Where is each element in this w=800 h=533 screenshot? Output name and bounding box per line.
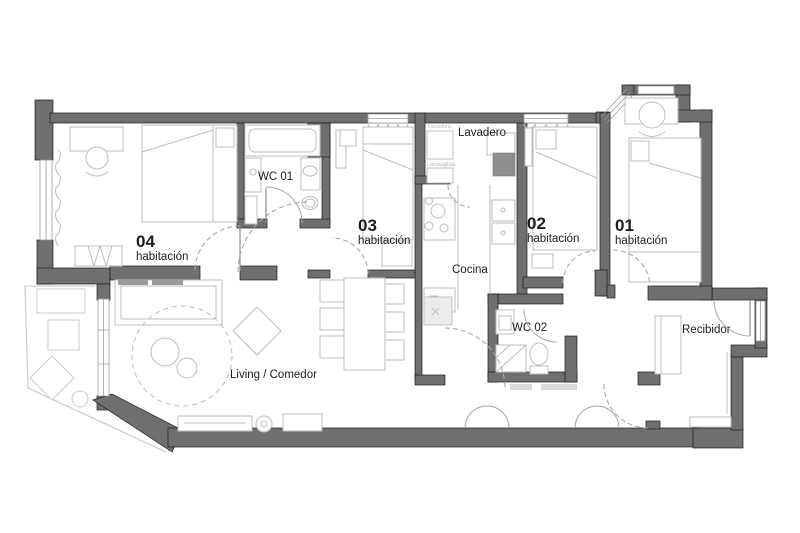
toilet-wc02 [530,343,548,365]
wall-divider-foot [595,270,607,296]
room-03-label: habitación [358,235,410,247]
dining-chair-1 [320,280,344,302]
wall-lavadero-left [415,113,425,183]
wall-pillar-top-left [35,100,53,160]
fridge [424,297,452,325]
door-arc-room02 [563,251,595,283]
living-label: Living / Comedor [230,369,317,381]
wall-wc02-right [565,336,577,382]
door-arc-room04 [195,226,240,271]
lavadero-label: Lavadero [458,127,506,139]
coffee-table-2 [177,358,197,378]
wall-room01-02-divider [600,113,610,296]
bathtub-inner [249,129,316,152]
room-01: 01 habitación [615,98,701,282]
threshold-1 [510,384,532,390]
sink-right [303,166,317,176]
wall-right-room01 [700,110,712,300]
dishwasher [427,168,453,183]
lavadero: Lavadora Lavavajillas Lavadero [427,124,515,183]
room-04: 04 habitación [56,125,238,266]
coffee-table-1 [151,338,179,366]
room-04-number: 04 [136,232,155,251]
dining-table [344,278,385,370]
room-03-number: 03 [358,216,377,235]
wall-right-recibidor-low [731,355,743,430]
dining-set [320,278,404,370]
room-02-number: 02 [527,214,546,233]
room-01-number: 01 [615,216,634,235]
washing-machine [427,131,453,159]
floor-plan-canvas: 04 habitación WC 01 03 habitación Lavado… [0,0,800,533]
cabinet-left [245,196,257,224]
bed-pillow [216,128,234,147]
sofa [115,280,222,325]
wall-balcony-door-top [97,284,110,300]
cocina: Cocina [424,185,515,312]
nightstand-03 [340,130,356,146]
recibidor: Recibidor [655,316,731,427]
wc-02: WC 02 [496,310,548,374]
wall-room04-bottom-a [110,266,200,280]
plant [256,416,272,432]
curtain-wave [56,150,61,246]
room-02: 02 habitación [524,124,597,268]
desk-chair-back [86,172,108,176]
wall-room01-corner-h [676,110,712,122]
living-comedor: Living / Comedor [115,278,404,432]
sofa-cushion-1 [118,280,148,285]
wall-diag-cap-north [622,85,634,95]
wall-recibidor-top [712,288,767,300]
wall-kitchen-left [415,183,422,378]
dining-chair-2 [320,308,344,330]
wc-01-label: WC 01 [258,171,293,183]
wall-left-jog [37,268,110,284]
room-01-label: habitación [615,235,667,247]
dishwasher-label: Lavavajillas [427,162,456,168]
desk-chair-01-back [639,132,665,137]
nightstand-02 [532,254,553,268]
wall-bottom-right-corner [693,428,743,448]
desk-chair [86,147,108,169]
wall-wc01-bottom-b [300,219,330,228]
room-03: 03 habitación [336,124,413,266]
cabinet-upper-2 [492,223,515,244]
wall-wc02-top [488,294,563,304]
washer-label: Lavadora [428,124,452,130]
wall-room01-bottom-a [607,285,615,298]
wall-room03-bottom-b [368,270,420,278]
dining-chair-3 [320,336,344,358]
bed-02-pillow [536,130,556,149]
toilet-wc02-tank [530,366,548,374]
wall-wc01-left [237,123,244,223]
balcony-table [37,289,85,313]
closet-recibidor [655,316,681,374]
wall-bottom-notch [646,421,660,429]
wall-room02-bottom [523,277,563,288]
door-arc-wc01 [266,187,302,223]
wall-room04-bottom-b [240,266,277,280]
desk-chair-01 [639,102,665,128]
shelf-02 [525,128,532,166]
armchair-diamond [233,307,281,355]
bed-01-pillow [631,141,649,161]
wc-01: WC 01 [245,125,320,224]
wall-top [50,113,607,123]
oven-column [493,153,515,176]
wall-room01-bottom-b [648,286,712,300]
cabinet-upper-1 [492,200,515,221]
wall-room03-bottom-a [308,270,330,278]
wall-niche-1 [465,406,509,428]
wall-hall-stub-west [415,375,445,385]
balcony-side-table [72,391,88,407]
room-02-label: habitación [527,233,579,245]
toilet-wc01 [302,197,318,210]
balcony-lounger [30,356,74,400]
sideboard [283,414,322,431]
cocina-label: Cocina [452,264,488,276]
room-04-label: habitación [136,251,188,263]
recibidor-label: Recibidor [682,324,731,336]
wardrobe [75,246,122,266]
balcony-chair [48,320,79,350]
window-room01 [638,86,674,94]
doormat [690,417,731,427]
threshold-2 [541,384,577,390]
door-arc-hall-east [604,384,648,428]
sofa-cushion-2 [152,280,183,285]
